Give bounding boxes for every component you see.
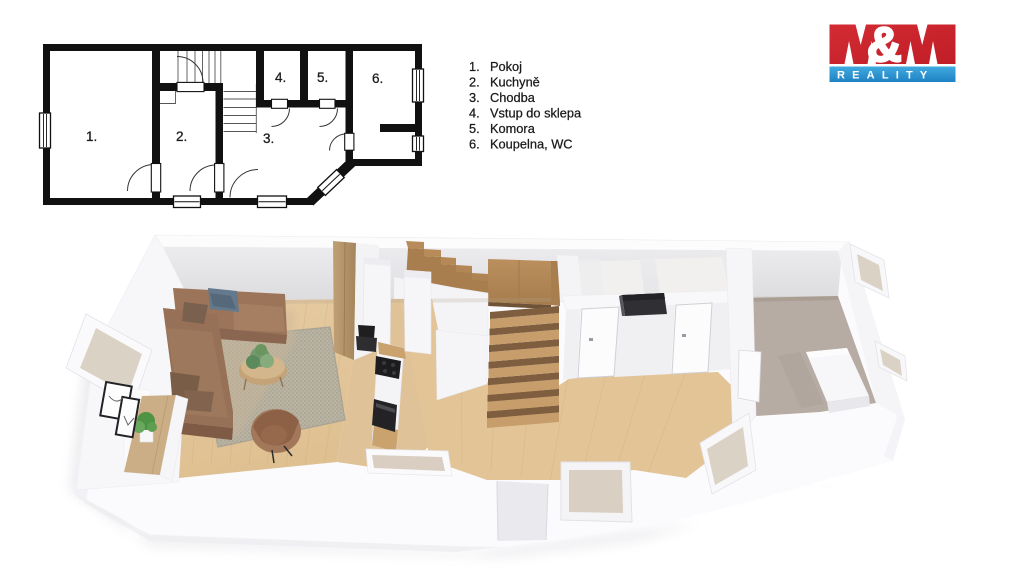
svg-text:Vstup do sklepa: Vstup do sklepa [490,106,582,121]
svg-text:REALITY: REALITY [837,70,934,82]
svg-text:Koupelna, WC: Koupelna, WC [490,137,573,152]
svg-text:1.: 1. [86,129,97,144]
svg-text:3.: 3. [263,131,274,146]
svg-text:Komora: Komora [490,121,536,136]
svg-text:1.: 1. [469,59,480,74]
svg-text:6.: 6. [469,137,480,152]
svg-text:5.: 5. [317,70,328,85]
svg-text:5.: 5. [469,121,480,136]
svg-text:4.: 4. [275,70,286,85]
svg-text:Pokoj: Pokoj [490,59,522,74]
svg-text:6.: 6. [372,71,383,86]
svg-text:2.: 2. [176,129,187,144]
svg-text:4.: 4. [469,106,480,121]
svg-text:2.: 2. [469,75,480,90]
svg-text:Kuchyně: Kuchyně [490,75,540,90]
svg-text:&: & [867,19,902,72]
svg-text:3.: 3. [469,90,480,105]
svg-text:Chodba: Chodba [490,90,536,105]
